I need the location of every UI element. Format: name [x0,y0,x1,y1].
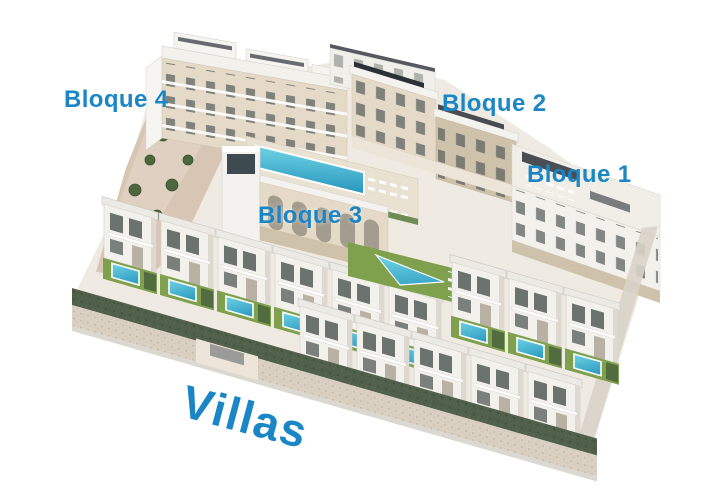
site-render [0,0,705,501]
label-bloque-3: Bloque 3 [258,202,363,230]
label-bloque-1: Bloque 1 [527,161,632,189]
label-bloque-4: Bloque 4 [64,86,169,114]
site-plan-image: Bloque 4 Bloque 2 Bloque 1 Bloque 3 Vill… [0,0,705,501]
label-bloque-2: Bloque 2 [442,90,547,118]
